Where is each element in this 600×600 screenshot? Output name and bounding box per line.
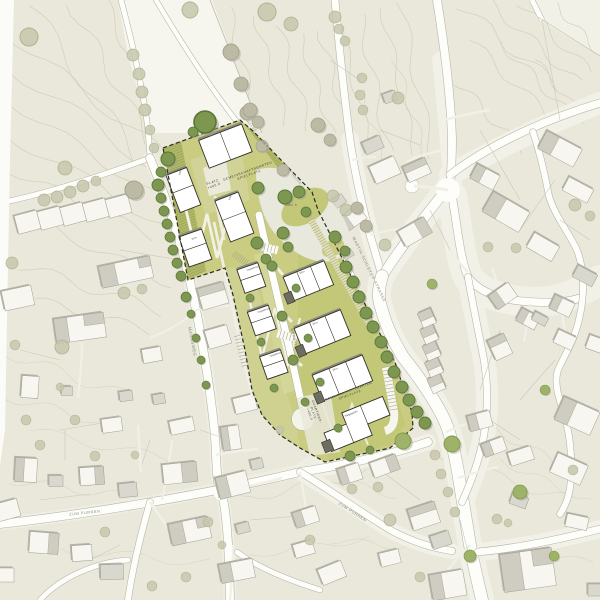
svg-text:+461.5: +461.5 bbox=[285, 203, 297, 207]
